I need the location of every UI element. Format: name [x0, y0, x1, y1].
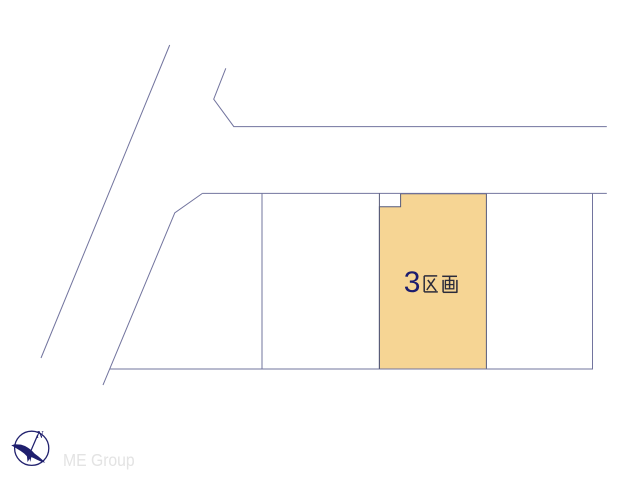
svg-text:ME Group: ME Group [63, 450, 135, 470]
svg-text:3: 3 [404, 266, 421, 299]
svg-text:N: N [35, 430, 44, 441]
